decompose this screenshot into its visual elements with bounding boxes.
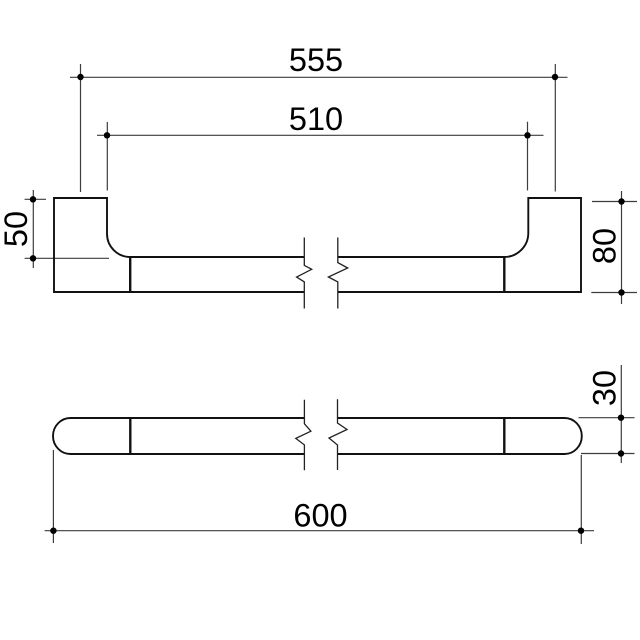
svg-text:50: 50 [0, 211, 34, 247]
svg-text:600: 600 [293, 498, 347, 534]
svg-text:510: 510 [289, 101, 343, 137]
svg-text:80: 80 [587, 228, 623, 264]
svg-text:555: 555 [289, 42, 343, 78]
svg-text:30: 30 [587, 370, 623, 406]
